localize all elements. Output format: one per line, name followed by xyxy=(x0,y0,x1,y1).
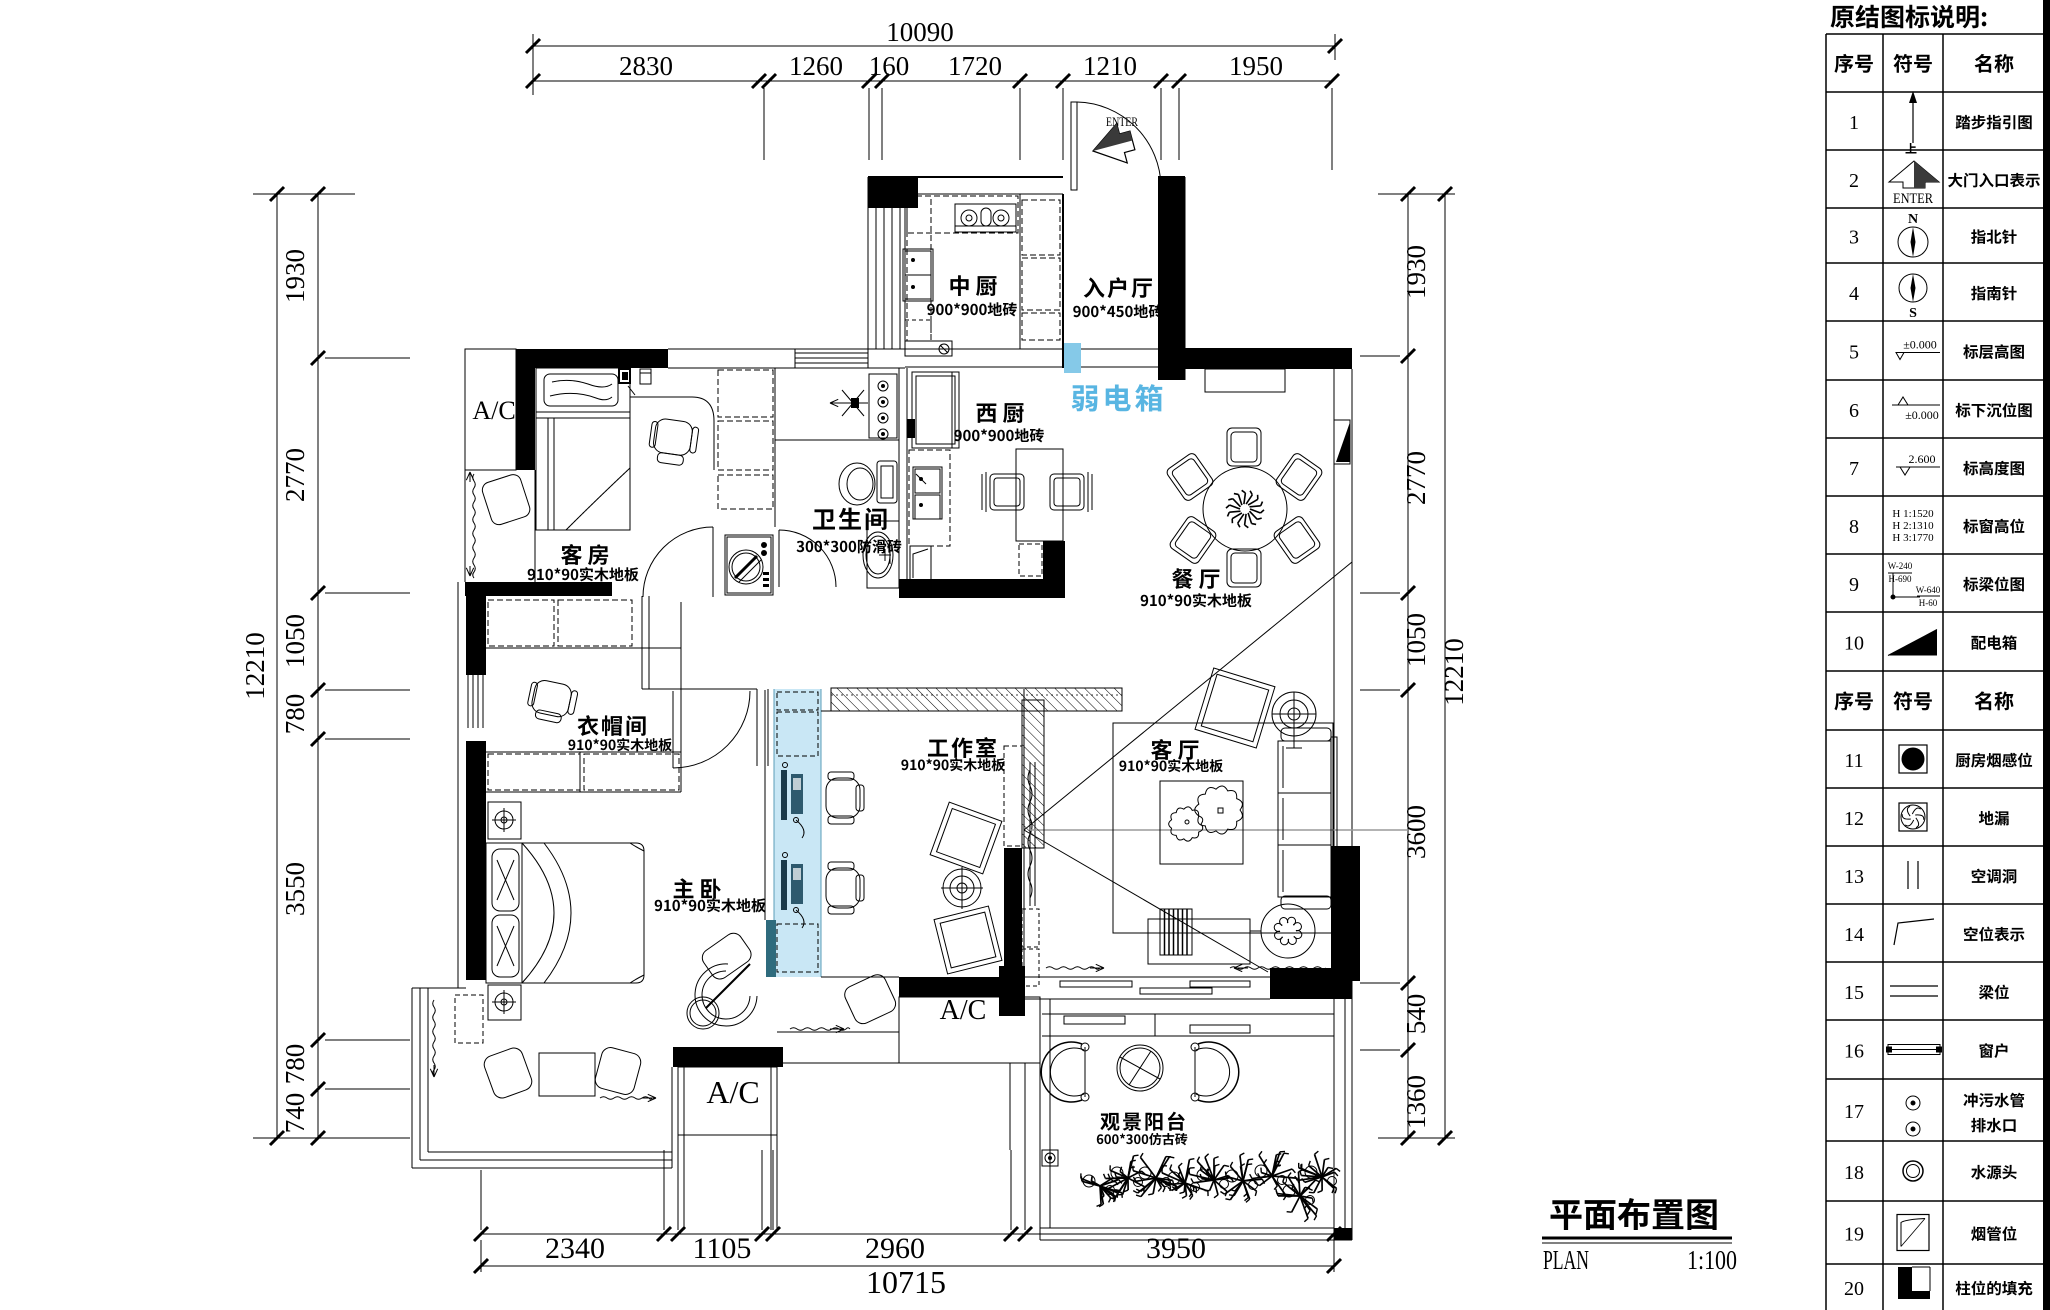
svg-text:10: 10 xyxy=(1844,633,1864,655)
svg-text:1720: 1720 xyxy=(948,51,1002,81)
svg-text:3: 3 xyxy=(1849,227,1859,249)
svg-text:3950: 3950 xyxy=(1146,1232,1206,1265)
svg-text:H-690: H-690 xyxy=(1889,574,1912,584)
svg-text:1:100: 1:100 xyxy=(1687,1245,1737,1275)
svg-text:19: 19 xyxy=(1844,1224,1864,1246)
svg-text:2.600: 2.600 xyxy=(1909,452,1936,466)
svg-text:1210: 1210 xyxy=(1083,51,1137,81)
svg-text:540: 540 xyxy=(1401,994,1431,1035)
svg-text:2: 2 xyxy=(1849,170,1859,192)
svg-text:W-240: W-240 xyxy=(1888,561,1913,571)
svg-text:8: 8 xyxy=(1849,516,1859,538)
svg-text:H 1:1520: H 1:1520 xyxy=(1892,508,1934,520)
svg-text:9: 9 xyxy=(1849,574,1859,596)
svg-text:ENTER: ENTER xyxy=(1106,114,1138,129)
svg-text:3550: 3550 xyxy=(280,862,310,916)
svg-text:15: 15 xyxy=(1844,982,1864,1004)
svg-text:20: 20 xyxy=(1844,1278,1864,1300)
svg-text:16: 16 xyxy=(1844,1041,1864,1063)
svg-text:N: N xyxy=(1908,212,1918,227)
svg-text:±0.000: ±0.000 xyxy=(1903,338,1937,352)
svg-text:5: 5 xyxy=(1849,342,1859,364)
svg-text:1: 1 xyxy=(1849,112,1859,134)
svg-text:2830: 2830 xyxy=(619,51,673,81)
svg-text:14: 14 xyxy=(1844,924,1864,946)
svg-text:10090: 10090 xyxy=(886,17,954,47)
svg-text:6: 6 xyxy=(1849,400,1859,422)
svg-text:160: 160 xyxy=(869,51,910,81)
svg-text:S: S xyxy=(1909,306,1917,321)
svg-text:11: 11 xyxy=(1844,750,1863,772)
svg-text:A/C: A/C xyxy=(706,1074,759,1110)
svg-text:W-640: W-640 xyxy=(1916,585,1941,595)
svg-text:12210: 12210 xyxy=(1439,638,1469,706)
svg-text:2340: 2340 xyxy=(545,1232,605,1265)
svg-text:18: 18 xyxy=(1844,1162,1864,1184)
svg-text:2770: 2770 xyxy=(1401,451,1431,505)
svg-text:1050: 1050 xyxy=(1401,613,1431,667)
svg-text:17: 17 xyxy=(1844,1101,1864,1123)
svg-text:1950: 1950 xyxy=(1229,51,1283,81)
svg-text:13: 13 xyxy=(1844,866,1864,888)
svg-text:ENTER: ENTER xyxy=(1893,191,1933,207)
svg-text:PLAN: PLAN xyxy=(1543,1245,1589,1275)
svg-text:780: 780 xyxy=(280,694,310,735)
svg-text:H 3:1770: H 3:1770 xyxy=(1892,532,1934,544)
svg-text:A/C: A/C xyxy=(940,995,987,1026)
svg-text:2770: 2770 xyxy=(280,448,310,502)
svg-text:1050: 1050 xyxy=(280,614,310,668)
svg-text:740: 740 xyxy=(280,1093,310,1134)
svg-text:2960: 2960 xyxy=(865,1232,925,1265)
svg-text:H-60: H-60 xyxy=(1919,598,1938,608)
svg-text:7: 7 xyxy=(1849,458,1859,480)
svg-text:1930: 1930 xyxy=(1401,245,1431,299)
svg-text:1260: 1260 xyxy=(789,51,843,81)
svg-text:±0.000: ±0.000 xyxy=(1905,408,1939,422)
svg-text:12210: 12210 xyxy=(240,632,270,700)
svg-text:4: 4 xyxy=(1849,283,1859,305)
svg-text:H 2:1310: H 2:1310 xyxy=(1892,520,1934,532)
svg-text:3600: 3600 xyxy=(1401,805,1431,859)
svg-text:12: 12 xyxy=(1844,808,1864,830)
svg-text:1930: 1930 xyxy=(280,249,310,303)
svg-text:A/C: A/C xyxy=(472,396,515,425)
svg-text:780: 780 xyxy=(280,1044,310,1085)
svg-text:1360: 1360 xyxy=(1401,1075,1431,1129)
svg-text:10715: 10715 xyxy=(866,1264,946,1300)
svg-text:1105: 1105 xyxy=(693,1232,752,1265)
